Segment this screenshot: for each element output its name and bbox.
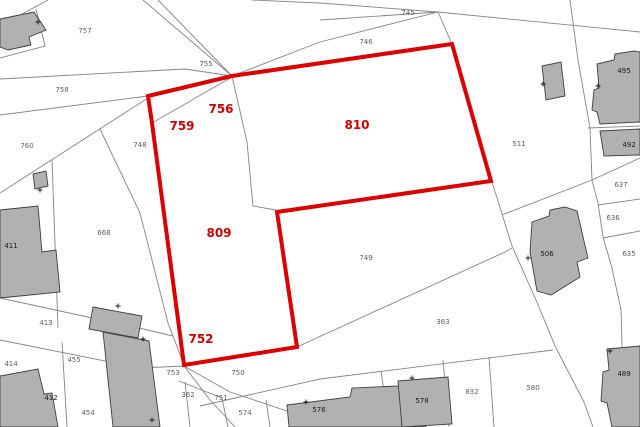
- parcel-label-758: 758: [55, 86, 68, 94]
- parcel-boundary-line-27: [598, 199, 640, 205]
- parcel-label-636: 636: [606, 214, 620, 222]
- parcel-label-745: 745: [401, 9, 414, 17]
- selected-parcel-label-756: 756: [208, 102, 233, 116]
- parcel-boundary-line-23: [297, 248, 512, 347]
- cadastral-map[interactable]: 7577587607487557457465116376366356687493…: [0, 0, 640, 427]
- building-label-412: 412: [44, 394, 57, 402]
- corner-marker-7: [526, 256, 531, 261]
- building-2: [0, 206, 60, 298]
- parcel-label-746: 746: [359, 38, 373, 46]
- parcel-boundary-line-3: [143, 0, 232, 76]
- parcel-label-668: 668: [97, 229, 110, 237]
- selected-parcels-outline: [148, 44, 491, 365]
- parcel-label-637: 637: [614, 181, 627, 189]
- parcel-boundary-line-10: [0, 340, 184, 368]
- selected-parcel-label-810: 810: [344, 118, 369, 132]
- parcel-boundary-line-11: [62, 342, 67, 427]
- parcel-label-363: 363: [436, 318, 449, 326]
- parcel-label-832: 832: [465, 388, 478, 396]
- building-4: [103, 332, 160, 427]
- building-label-495: 495: [617, 67, 630, 75]
- parcel-boundary-line-8: [52, 160, 58, 328]
- building-label-492: 492: [622, 141, 635, 149]
- selected-parcel-label-752: 752: [188, 332, 213, 346]
- building-label-578: 578: [415, 397, 428, 405]
- corner-marker-2: [116, 304, 121, 309]
- parcel-boundary-line-34: [438, 12, 452, 44]
- parcel-boundary-line-30: [588, 126, 640, 128]
- parcel-boundary-line-26: [592, 180, 623, 377]
- parcel-label-755: 755: [199, 60, 212, 68]
- building-0: [0, 12, 46, 50]
- parcel-boundary-line-18: [266, 400, 270, 427]
- parcel-label-580: 580: [526, 384, 539, 392]
- parcel-boundary-line-15: [185, 382, 190, 427]
- parcel-label-574: 574: [238, 409, 252, 417]
- parcel-boundary-line-28: [603, 231, 640, 238]
- building-8: [601, 346, 640, 427]
- building-label-506: 506: [540, 250, 554, 258]
- parcel-label-511: 511: [512, 140, 525, 148]
- selected-parcel-label-759: 759: [169, 119, 194, 133]
- parcel-label-757: 757: [78, 27, 91, 35]
- building-label-411: 411: [4, 242, 17, 250]
- parcel-boundary-line-16: [222, 398, 228, 427]
- parcel-label-454: 454: [81, 409, 95, 417]
- building-9: [530, 207, 588, 295]
- parcel-label-635: 635: [622, 250, 635, 258]
- parcel-boundary-line-9: [0, 298, 173, 336]
- parcel-boundary-line-31: [252, 0, 640, 32]
- parcel-boundary-line-21: [489, 357, 494, 427]
- parcel-label-414: 414: [4, 360, 18, 368]
- parcel-label-760: 760: [20, 142, 33, 150]
- parcel-boundary-line-32: [320, 12, 438, 20]
- parcel-boundary-line-2: [0, 69, 232, 79]
- parcel-boundary-line-36: [232, 76, 276, 210]
- building-10: [592, 51, 640, 124]
- parcel-label-750: 750: [231, 369, 244, 377]
- selected-parcel-label-809: 809: [206, 226, 231, 240]
- parcel-label-362: 362: [181, 391, 194, 399]
- parcel-boundary-line-4: [158, 0, 232, 76]
- parcel-label-748: 748: [133, 141, 146, 149]
- parcel-label-753: 753: [166, 369, 179, 377]
- building-1: [33, 171, 48, 189]
- parcel-label-751: 751: [214, 394, 227, 402]
- parcel-boundary-line-33: [232, 12, 438, 76]
- parcel-label-749: 749: [359, 254, 372, 262]
- building-3: [89, 307, 142, 338]
- parcel-label-455: 455: [67, 356, 80, 364]
- cadastral-map-viewport[interactable]: 7577587607487557457465116376366356687493…: [0, 0, 640, 427]
- building-12: [542, 62, 565, 100]
- building-label-576: 576: [312, 406, 326, 414]
- building-label-489: 489: [617, 370, 630, 378]
- parcel-label-413: 413: [39, 319, 52, 327]
